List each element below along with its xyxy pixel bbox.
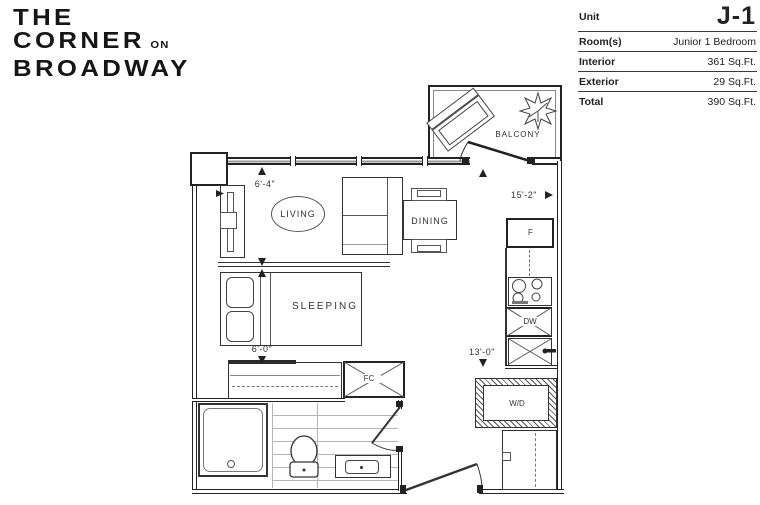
- closet-rod-line: [232, 386, 338, 387]
- window-wall: [228, 157, 470, 165]
- living-label-ellipse: LIVING: [271, 196, 325, 232]
- closet-shelf-line: [230, 375, 340, 376]
- bed-pillow: [226, 277, 254, 308]
- kitchen-counter-dashed: [529, 250, 530, 276]
- cooktop: [508, 277, 552, 306]
- fan-coil-label: FC: [357, 374, 381, 383]
- balcony-inner-line: [433, 90, 556, 162]
- brand-line-2: CORNERON: [13, 29, 191, 57]
- wall-left: [192, 186, 197, 492]
- column-top-left: [190, 152, 228, 186]
- bed-fold-line: [270, 273, 271, 345]
- dim-sleeping-width: 6'-0": [240, 344, 284, 354]
- unit-value: J-1: [717, 2, 756, 31]
- interior-value: 361 Sq.Ft.: [708, 56, 756, 68]
- brand-line-3: BROADWAY: [13, 57, 191, 80]
- dim-overall-width: 15'-2": [502, 190, 546, 200]
- exterior-label: Exterior: [579, 76, 619, 88]
- tv-console-shelf: [220, 212, 237, 229]
- wall-bottom-left: [192, 489, 407, 494]
- kitchen-bottom-wall: [505, 365, 557, 369]
- exterior-value: 29 Sq.Ft.: [713, 76, 756, 88]
- brand-logo: THE CORNERON BROADWAY: [13, 6, 191, 80]
- total-value: 390 Sq.Ft.: [708, 96, 756, 108]
- exterior-row: Exterior 29 Sq.Ft.: [578, 72, 757, 92]
- kitchen-sink-box: [508, 338, 552, 366]
- unit-info-row: Unit J-1: [578, 2, 757, 32]
- vanity-faucet: [360, 466, 363, 469]
- balcony-label: BALCONY: [486, 130, 550, 140]
- bathtub-drain: [227, 460, 235, 468]
- entry-closet-rod: [535, 433, 536, 487]
- dishwasher-label: DW: [517, 317, 543, 326]
- bathroom-tile-joint: [317, 403, 318, 488]
- entry-closet-notch: [502, 452, 511, 461]
- bathroom-right-wall-lower: [398, 446, 402, 491]
- bedroom-closet: [228, 362, 342, 399]
- bathroom-tile-joint: [272, 403, 273, 488]
- wall-right: [557, 161, 562, 494]
- brand-line-2-suffix: ON: [150, 40, 169, 51]
- sofa-back-line: [387, 178, 388, 254]
- rooms-row: Room(s) Junior 1 Bedroom: [578, 32, 757, 52]
- bathroom-right-wall-upper: [398, 400, 402, 409]
- brand-line-1: THE: [13, 6, 191, 29]
- window-mullion: [356, 156, 362, 166]
- fridge-label: F: [524, 228, 537, 237]
- unit-info-table: Unit J-1 Room(s) Junior 1 Bedroom Interi…: [578, 2, 757, 111]
- entry-door: [400, 464, 483, 493]
- total-label: Total: [579, 96, 603, 108]
- bed-fold-line: [260, 273, 261, 345]
- interior-row: Interior 361 Sq.Ft.: [578, 52, 757, 72]
- dining-label: DINING: [404, 216, 456, 226]
- rooms-value: Junior 1 Bedroom: [673, 36, 756, 48]
- window-mullion: [290, 156, 296, 166]
- living-sleeping-divider: [218, 262, 390, 267]
- washer-dryer-label: W/D: [502, 399, 532, 408]
- dining-chair-bottom-back: [417, 245, 441, 252]
- window-mullion: [422, 156, 428, 166]
- sofa-cushion-line: [343, 215, 387, 216]
- sleeping-label: SLEEPING: [277, 302, 373, 312]
- dining-chair-top-back: [417, 190, 441, 197]
- living-label: LIVING: [280, 209, 316, 219]
- total-row: Total 390 Sq.Ft.: [578, 92, 757, 111]
- sofa-seat-line: [343, 244, 387, 245]
- floorplan-page: THE CORNERON BROADWAY Unit J-1 Room(s) J…: [0, 0, 760, 505]
- unit-label: Unit: [579, 11, 599, 23]
- interior-label: Interior: [579, 56, 615, 68]
- closet-wall-band: [228, 360, 296, 364]
- bathroom-top-wall: [192, 398, 345, 402]
- brand-line-2-main: CORNER: [13, 27, 145, 53]
- dim-living-width: 6'-4": [243, 179, 287, 189]
- rooms-label: Room(s): [579, 36, 622, 48]
- dim-overall-depth: 13'-0": [460, 347, 504, 357]
- bed-pillow: [226, 311, 254, 342]
